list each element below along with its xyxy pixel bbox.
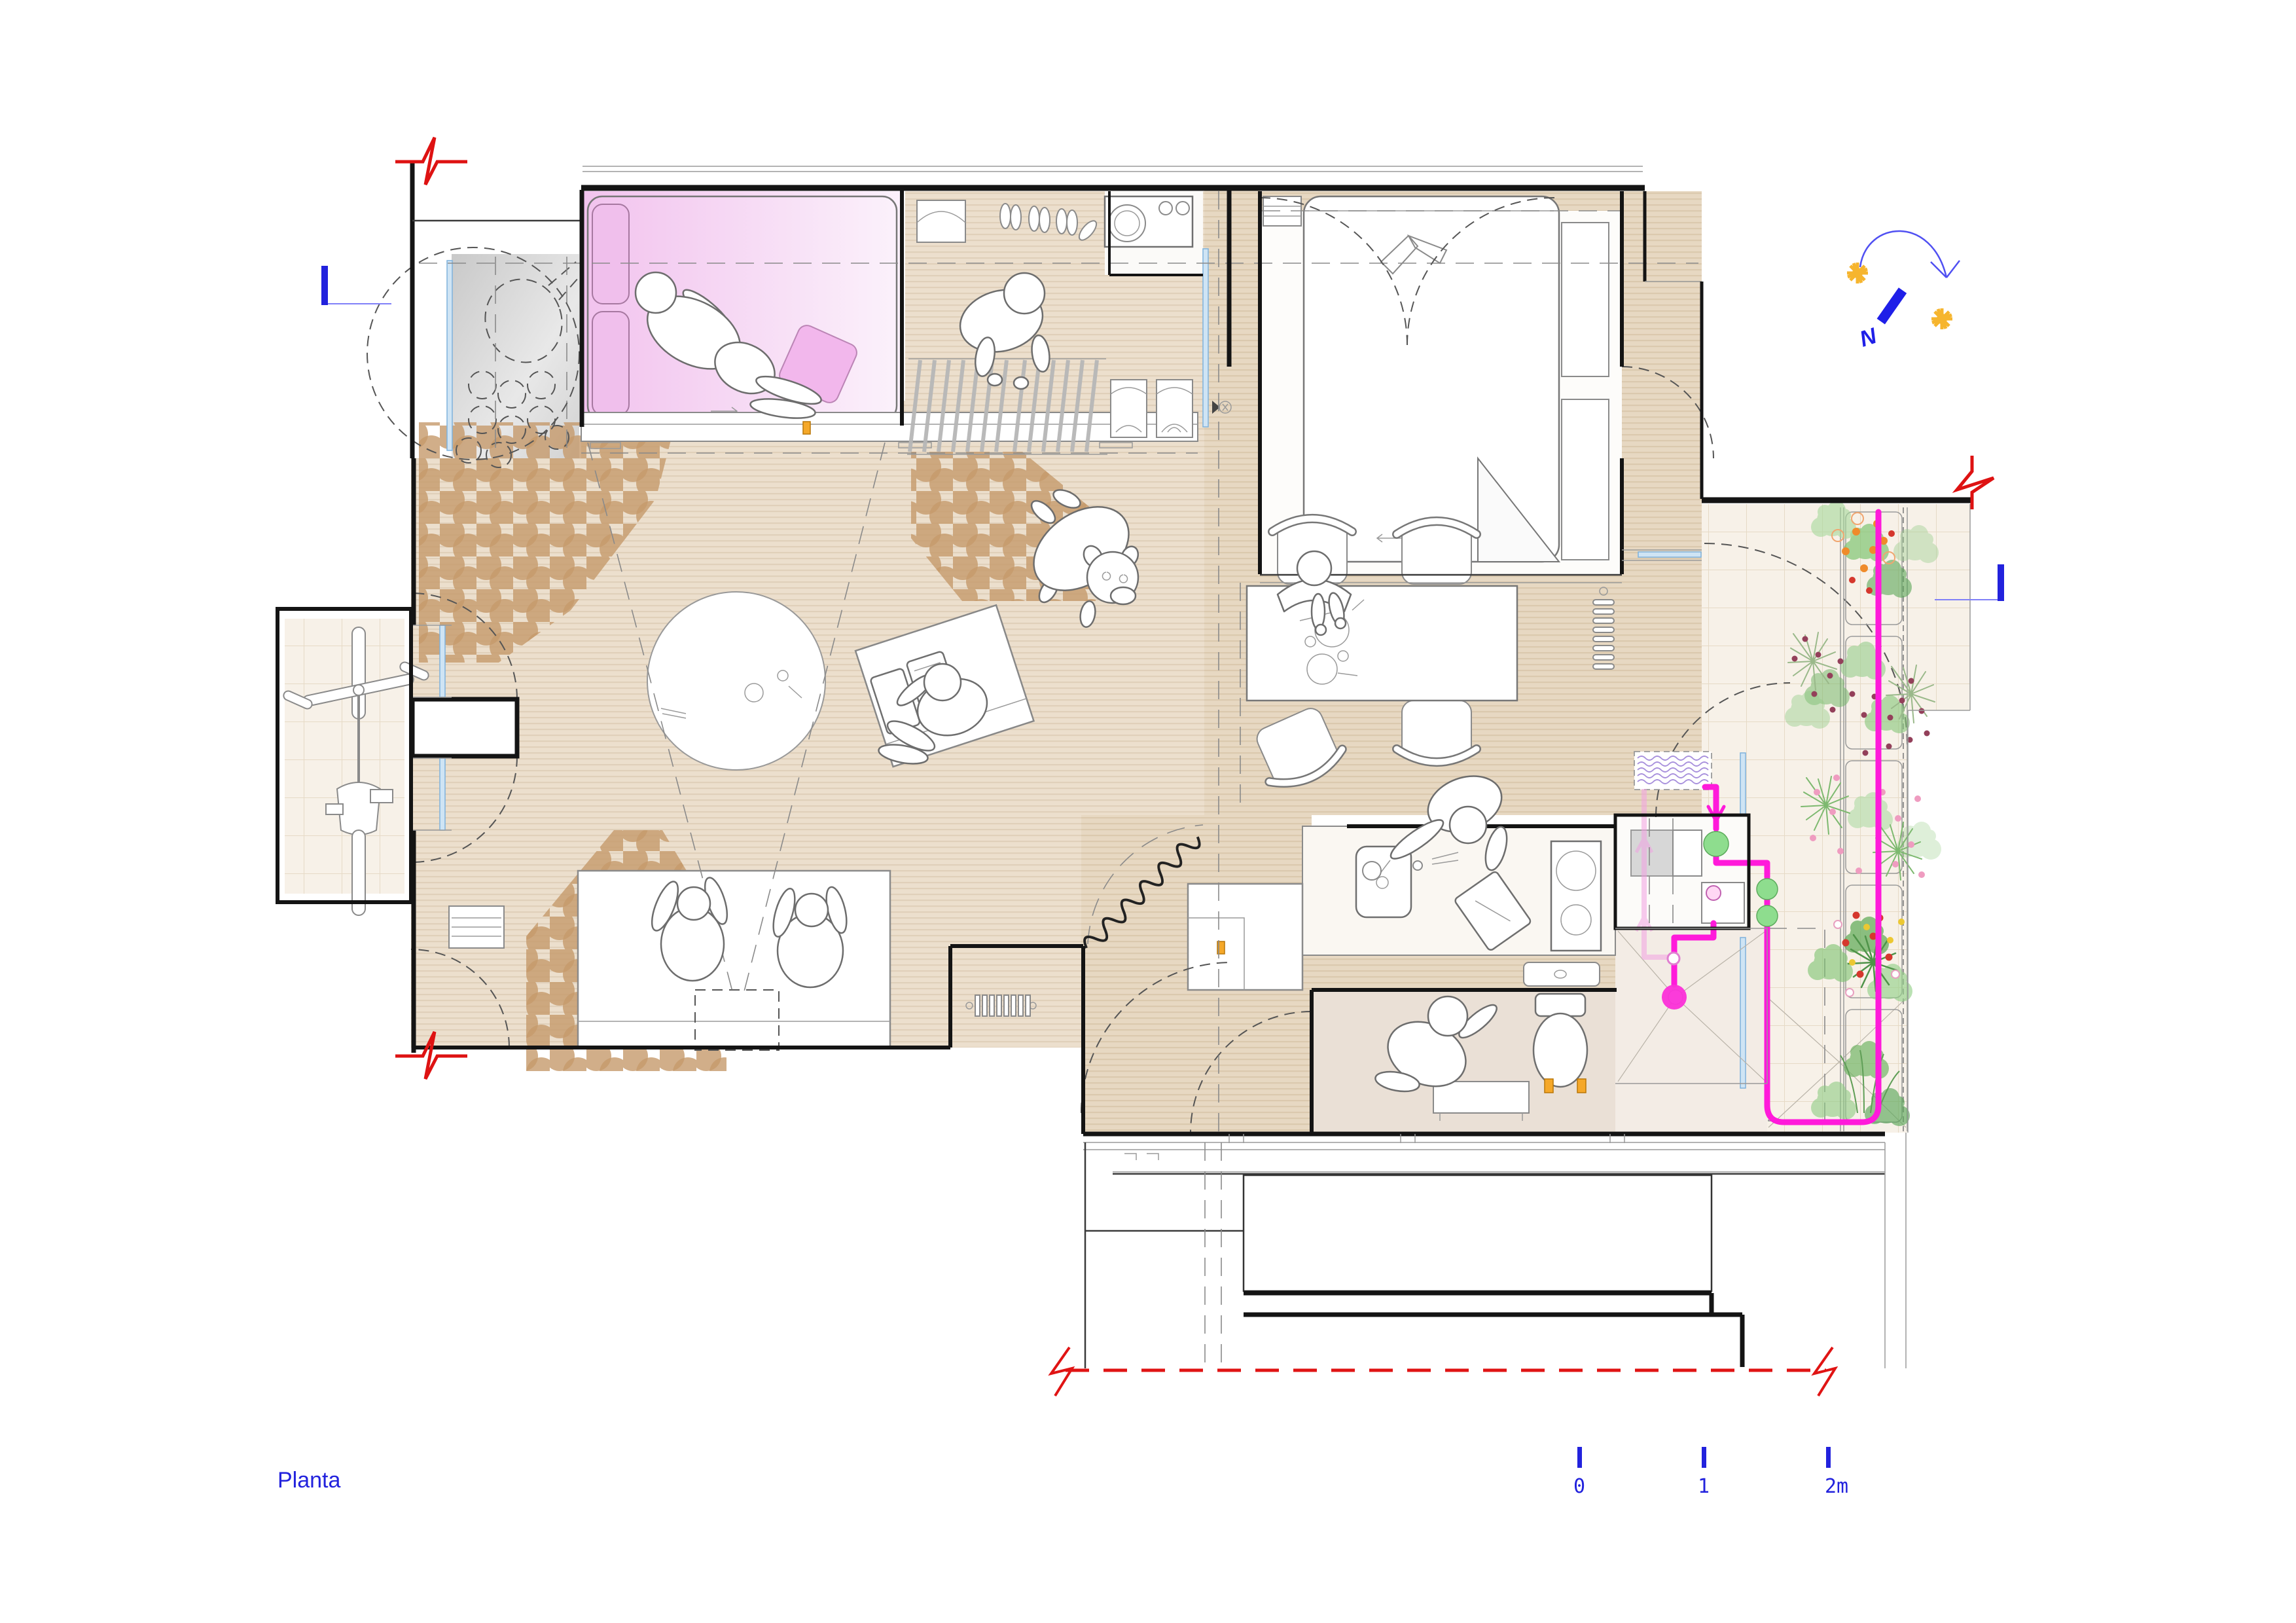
scale-label-1: 1 bbox=[1698, 1475, 1710, 1498]
induction-hob bbox=[1551, 841, 1601, 951]
kitchen-island bbox=[1188, 884, 1302, 990]
sun-icon bbox=[1931, 308, 1952, 329]
living-radiator bbox=[966, 995, 1036, 1016]
dressing-partition-glass bbox=[1203, 249, 1208, 427]
scale-tick bbox=[1702, 1447, 1706, 1468]
scale-tick bbox=[1577, 1447, 1582, 1468]
net-terrace-window bbox=[447, 261, 452, 450]
scale-label-0: 0 bbox=[1573, 1475, 1585, 1498]
lower-annex bbox=[1083, 1133, 1906, 1368]
compass-needle bbox=[1877, 287, 1907, 324]
entry-window-upper bbox=[440, 625, 445, 697]
round-rug bbox=[647, 592, 825, 770]
entry-window-lower bbox=[440, 758, 445, 830]
north-arrow: N bbox=[1847, 231, 1960, 352]
floor-plan-canvas: N Planta 0 1 2m bbox=[0, 0, 2296, 1623]
laundry-appliances bbox=[1105, 196, 1193, 247]
floor-plan-page: N Planta 0 1 2m bbox=[0, 0, 2296, 1623]
section-cut-top-left bbox=[395, 137, 467, 185]
terrace-glass-rail bbox=[1638, 552, 1701, 557]
shower-window bbox=[1740, 938, 1746, 1088]
toilet bbox=[1534, 994, 1587, 1087]
scale-bar: 0 1 2m bbox=[1573, 1447, 1848, 1498]
greywater-tank bbox=[1634, 752, 1712, 790]
scale-label-2m: 2m bbox=[1825, 1475, 1848, 1498]
shower-drain-node bbox=[1662, 985, 1687, 1010]
red-break-line bbox=[1051, 1347, 1835, 1396]
sun-icon bbox=[1847, 263, 1868, 283]
main-bed bbox=[1263, 196, 1609, 562]
bath-shelf bbox=[1524, 962, 1600, 986]
towel-radiator bbox=[1593, 587, 1614, 669]
pipe-junction bbox=[1668, 953, 1679, 964]
sheet-title: Planta bbox=[278, 1468, 340, 1493]
towel-cabinet bbox=[449, 906, 504, 948]
utility-window bbox=[1740, 753, 1746, 815]
scale-tick bbox=[1826, 1447, 1831, 1468]
bench-sofa bbox=[578, 871, 890, 1050]
bath-bench bbox=[1433, 1082, 1529, 1113]
bedroom-terrace-strip bbox=[1622, 191, 1702, 815]
north-label: N bbox=[1857, 323, 1880, 352]
bike-terrace-floor bbox=[285, 619, 404, 894]
